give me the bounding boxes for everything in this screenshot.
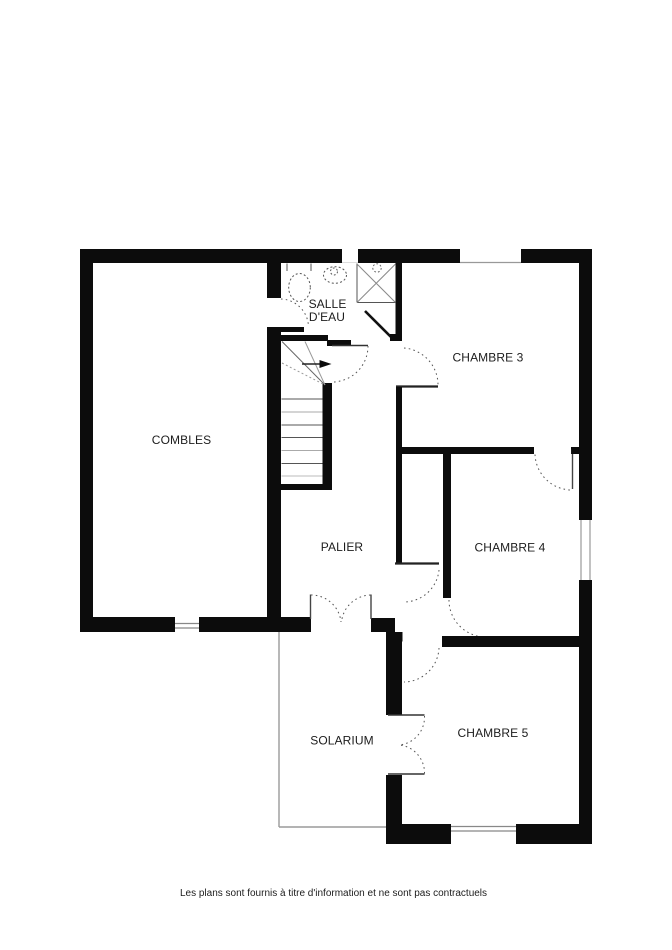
svg-text:CHAMBRE 3: CHAMBRE 3 [453, 351, 524, 365]
svg-text:CHAMBRE 4: CHAMBRE 4 [475, 541, 546, 555]
svg-text:PALIER: PALIER [321, 540, 364, 554]
svg-text:D'EAU: D'EAU [309, 310, 345, 324]
svg-text:COMBLES: COMBLES [152, 433, 211, 447]
svg-text:Les plans sont fournis à titre: Les plans sont fournis à titre d'informa… [180, 888, 487, 899]
svg-text:SOLARIUM: SOLARIUM [310, 734, 373, 748]
svg-text:SALLE: SALLE [309, 297, 347, 311]
svg-text:CHAMBRE 5: CHAMBRE 5 [458, 726, 529, 740]
